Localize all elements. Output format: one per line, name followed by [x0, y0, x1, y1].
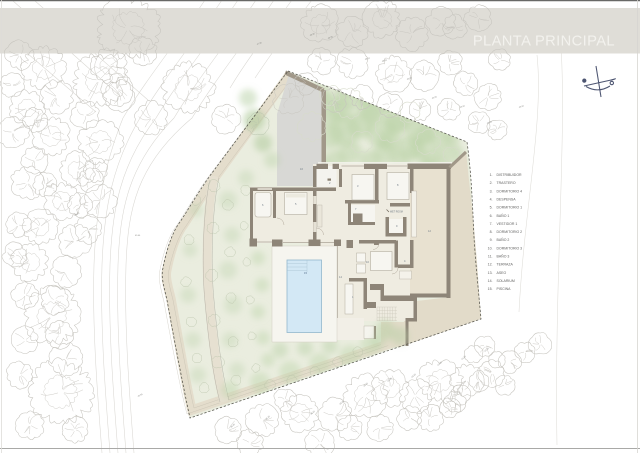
svg-text:DORMITORIO 1: DORMITORIO 1 — [497, 206, 523, 210]
svg-text:13.: 13. — [488, 271, 493, 275]
svg-text:1.: 1. — [490, 173, 493, 177]
svg-text:3.: 3. — [490, 189, 493, 193]
svg-text:BAÑO 1: BAÑO 1 — [497, 213, 510, 218]
svg-text:2.: 2. — [490, 181, 493, 185]
svg-text:15.: 15. — [488, 287, 493, 291]
svg-text:PISCINA: PISCINA — [497, 287, 512, 291]
svg-text:PLANTA PRINCIPAL: PLANTA PRINCIPAL — [473, 34, 615, 50]
svg-text:10.: 10. — [488, 246, 493, 250]
svg-text:8.: 8. — [490, 230, 493, 234]
svg-text:12.: 12. — [488, 263, 493, 267]
svg-text:4.: 4. — [490, 197, 493, 201]
svg-text:DORMITORIO 4: DORMITORIO 4 — [497, 189, 523, 193]
svg-text:DORMITORIO 2: DORMITORIO 2 — [497, 230, 523, 234]
svg-text:WET ROOM: WET ROOM — [390, 212, 403, 214]
svg-text:VESTIDOR 1: VESTIDOR 1 — [497, 222, 518, 226]
svg-text:5.: 5. — [490, 206, 493, 210]
svg-text:9.: 9. — [490, 238, 493, 242]
svg-text:DORMITORIO 3: DORMITORIO 3 — [497, 246, 523, 250]
svg-text:DISTRIBUIDOR: DISTRIBUIDOR — [497, 173, 523, 177]
svg-text:15: 15 — [304, 271, 308, 275]
svg-text:7.: 7. — [490, 222, 493, 226]
svg-text:14.: 14. — [488, 279, 493, 283]
svg-text:49.00: 49.00 — [135, 235, 141, 237]
svg-text:ASEO: ASEO — [497, 271, 507, 275]
svg-text:TERRAZA: TERRAZA — [497, 263, 514, 267]
svg-text:BAÑO 3: BAÑO 3 — [497, 254, 510, 259]
svg-text:BAÑO 2: BAÑO 2 — [497, 237, 510, 242]
svg-text:11.: 11. — [488, 255, 493, 259]
svg-text:6.: 6. — [490, 214, 493, 218]
svg-text:SOLARIUM: SOLARIUM — [497, 279, 515, 283]
svg-text:TRASTERO: TRASTERO — [497, 181, 516, 185]
svg-text:DESPENSA: DESPENSA — [497, 197, 517, 201]
